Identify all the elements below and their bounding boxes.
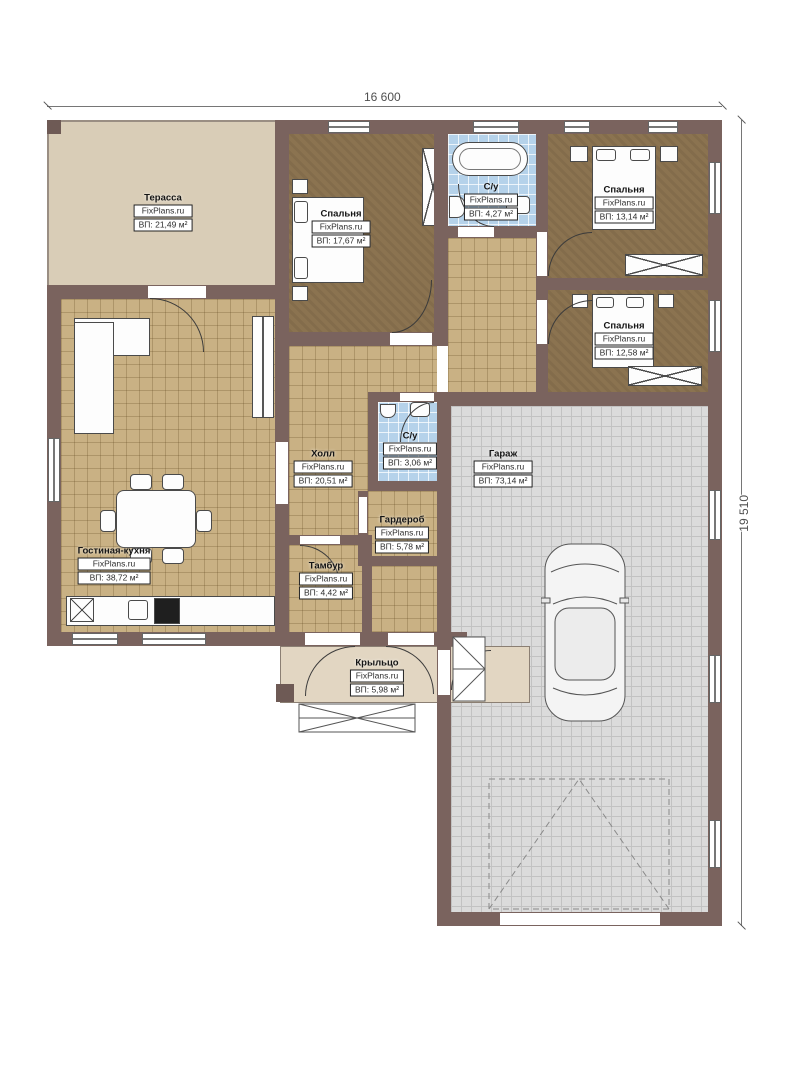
bedroom1-door-opening <box>390 333 432 345</box>
brand-watermark: FixPlans.ru <box>383 443 437 456</box>
pillow <box>294 201 308 223</box>
room-label-bedroom2: Спальня FixPlans.ru ВП: 13,14 м² <box>595 185 654 224</box>
room-area: ВП: 21,49 м² <box>134 219 193 232</box>
wardrobe-cabinet <box>625 254 703 276</box>
kitchen-sink <box>128 600 148 620</box>
width-dimension-label: 16 600 <box>360 90 405 104</box>
chair <box>100 510 116 532</box>
room-name: Холл <box>294 449 353 460</box>
corridor-floor <box>448 238 536 392</box>
bedroom3-door-opening <box>537 300 547 344</box>
room-label-wardrobe: Гардероб FixPlans.ru ВП: 5,78 м² <box>375 515 429 554</box>
window <box>72 633 118 645</box>
wall-bedroom2-3-divider <box>548 278 708 290</box>
pillow <box>596 297 614 308</box>
room-label-bedroom3: Спальня FixPlans.ru ВП: 12,58 м² <box>595 321 654 360</box>
terrace-door-opening <box>148 286 206 298</box>
wall-terrace-right <box>275 120 289 299</box>
room-area: ВП: 73,14 м² <box>474 475 533 488</box>
room-name: С/у <box>464 182 518 193</box>
brand-watermark: FixPlans.ru <box>350 670 404 683</box>
chair <box>162 474 184 490</box>
brand-watermark: FixPlans.ru <box>134 205 193 218</box>
bedroom2-door-opening <box>537 232 547 276</box>
chair <box>196 510 212 532</box>
room-label-terrace: Терасса FixPlans.ru ВП: 21,49 м² <box>134 193 193 232</box>
room-name: Гараж <box>474 449 533 460</box>
terrace-post <box>47 120 61 134</box>
room-area: ВП: 3,06 м² <box>383 457 437 470</box>
chair <box>130 474 152 490</box>
room-name: Гардероб <box>375 515 429 526</box>
room-area: ВП: 13,14 м² <box>595 211 654 224</box>
sink <box>380 404 396 418</box>
window <box>709 300 721 352</box>
room-area: ВП: 4,27 м² <box>464 208 518 221</box>
room-area: ВП: 20,51 м² <box>294 475 353 488</box>
window <box>48 438 60 502</box>
brand-watermark: FixPlans.ru <box>595 333 654 346</box>
room-area: ВП: 17,67 м² <box>312 235 371 248</box>
nightstand <box>660 146 678 162</box>
room-name: С/у <box>383 431 437 442</box>
brand-watermark: FixPlans.ru <box>78 558 151 571</box>
room-name: Терасса <box>134 193 193 204</box>
nightstand <box>292 179 308 194</box>
pillow <box>626 297 644 308</box>
wall-bathroom2-bottom <box>368 481 438 491</box>
wall-vestibule-right <box>362 535 372 632</box>
stove <box>154 598 180 624</box>
brand-watermark: FixPlans.ru <box>312 221 371 234</box>
wall-bathroom2-left <box>368 392 378 491</box>
brand-watermark: FixPlans.ru <box>375 527 429 540</box>
pillow <box>294 257 308 279</box>
room-name: Спальня <box>595 321 654 332</box>
room-label-bedroom1: Спальня FixPlans.ru ВП: 17,67 м² <box>312 209 371 248</box>
vestibule-door-opening <box>300 536 340 544</box>
bathroom2-door-opening <box>400 393 434 401</box>
brand-watermark: FixPlans.ru <box>299 573 353 586</box>
brand-watermark: FixPlans.ru <box>595 197 654 210</box>
room-name: Крыльцо <box>350 658 404 669</box>
height-dimension-label: 19 510 <box>733 495 755 532</box>
pillow <box>630 149 650 161</box>
front-door-opening <box>305 633 360 645</box>
room-area: ВП: 12,58 м² <box>595 347 654 360</box>
porch-steps <box>298 703 416 733</box>
room-name: Гостиная-кухня <box>78 546 151 557</box>
room-area: ВП: 5,78 м² <box>375 541 429 554</box>
garage-side-door-opening <box>438 650 450 695</box>
room-label-living-kitchen: Гостиная-кухня FixPlans.ru ВП: 38,72 м² <box>78 546 151 585</box>
room-name: Спальня <box>595 185 654 196</box>
window <box>648 121 678 133</box>
room-label-bathroom1: С/у FixPlans.ru ВП: 4,27 м² <box>464 182 518 221</box>
wardrobe-door-opening <box>359 497 367 533</box>
pillow <box>596 149 616 161</box>
nightstand <box>570 146 588 162</box>
bathtub <box>452 142 528 176</box>
nightstand <box>658 294 674 308</box>
room-area: ВП: 5,98 м² <box>350 684 404 697</box>
window <box>709 655 721 703</box>
room-label-porch: Крыльцо FixPlans.ru ВП: 5,98 м² <box>350 658 404 697</box>
living-hall-opening <box>276 442 288 504</box>
room-area: ВП: 38,72 м² <box>78 572 151 585</box>
hall-passage-floor <box>368 566 437 632</box>
window <box>709 490 721 540</box>
floor-plan: 16 600 19 510 <box>0 0 792 1080</box>
garage-gate-swing-marking <box>488 778 670 910</box>
wall-bedroom1-right <box>434 120 448 346</box>
bathroom1-door-opening <box>458 227 494 237</box>
room-label-bathroom2: С/у FixPlans.ru ВП: 3,06 м² <box>383 431 437 470</box>
chair <box>162 548 184 564</box>
room-label-garage: Гараж FixPlans.ru ВП: 73,14 м² <box>474 449 533 488</box>
sofa-vertical-section <box>74 322 114 434</box>
room-name: Тамбур <box>299 561 353 572</box>
top-dimension-line <box>47 106 722 107</box>
room-area: ВП: 4,42 м² <box>299 587 353 600</box>
brand-watermark: FixPlans.ru <box>474 461 533 474</box>
window <box>473 121 519 133</box>
kitchen-appliance <box>70 598 94 622</box>
wardrobe-cabinet <box>628 366 702 386</box>
nightstand <box>292 286 308 301</box>
garage-entry-steps <box>452 636 486 702</box>
car-top-view <box>541 540 629 725</box>
hall-porch-door-opening <box>388 633 434 645</box>
window <box>709 162 721 214</box>
room-name: Спальня <box>312 209 371 220</box>
window <box>328 121 370 133</box>
window <box>709 820 721 868</box>
room-label-vestibule: Тамбур FixPlans.ru ВП: 4,42 м² <box>299 561 353 600</box>
wall-garage-top <box>437 392 708 406</box>
room-label-hall: Холл FixPlans.ru ВП: 20,51 м² <box>294 449 353 488</box>
brand-watermark: FixPlans.ru <box>464 194 518 207</box>
porch-post <box>276 684 294 702</box>
window <box>564 121 590 133</box>
garage-gate-opening <box>500 913 660 925</box>
cabinet <box>252 316 274 418</box>
window <box>142 633 206 645</box>
dining-table <box>116 490 196 548</box>
brand-watermark: FixPlans.ru <box>294 461 353 474</box>
